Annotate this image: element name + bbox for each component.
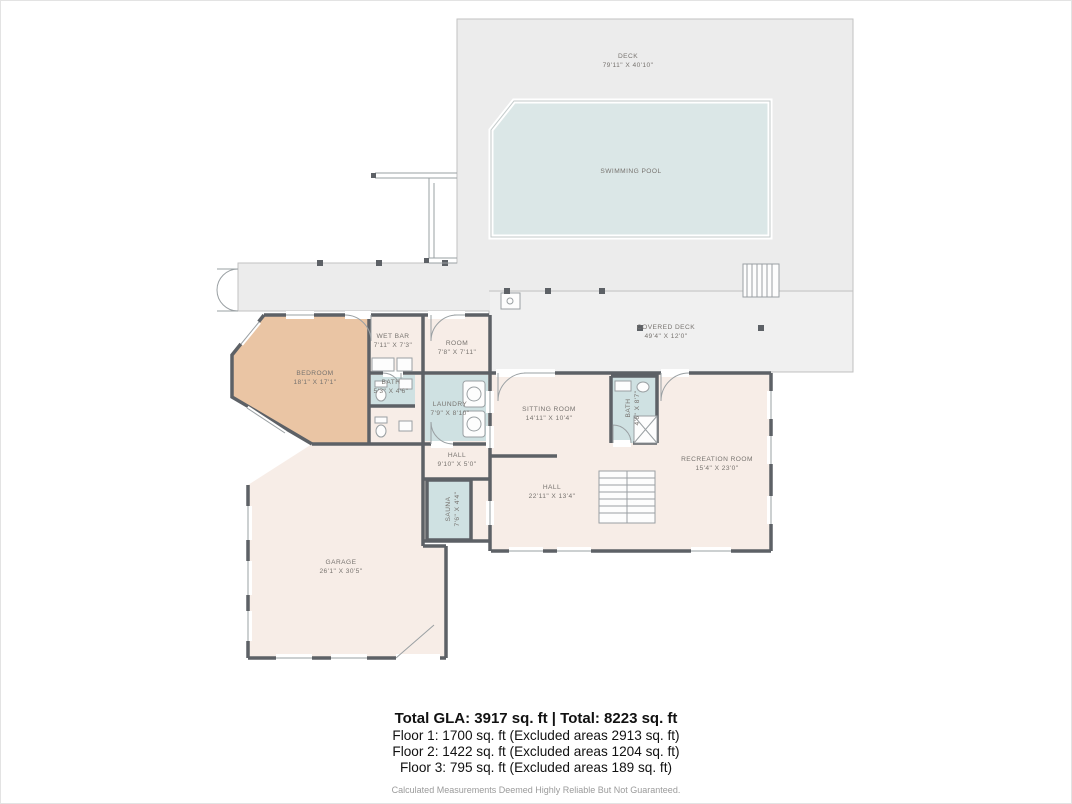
deck-equipment-box — [501, 293, 520, 309]
floor-1-line: Floor 1: 1700 sq. ft (Excluded areas 291… — [1, 728, 1071, 744]
floor-3-line: Floor 3: 795 sq. ft (Excluded areas 189 … — [1, 760, 1071, 776]
room-label-swimming-pool: SWIMMING POOL — [600, 168, 661, 175]
floor-plan-page: DECK79'11" X 40'10"SWIMMING POOLCOVERED … — [0, 0, 1072, 804]
disclaimer-line: Calculated Measurements Deemed Highly Re… — [1, 785, 1071, 795]
covered-deck-area — [490, 292, 852, 371]
interior-stairs — [599, 471, 655, 523]
total-gla-line: Total GLA: 3917 sq. ft | Total: 8223 sq.… — [1, 711, 1071, 728]
floor-2-line: Floor 2: 1422 sq. ft (Excluded areas 120… — [1, 744, 1071, 760]
deck-railing — [371, 173, 457, 263]
measurement-summary: Total GLA: 3917 sq. ft | Total: 8223 sq.… — [1, 711, 1071, 795]
garage-area — [248, 444, 446, 658]
floor-plan: DECK79'11" X 40'10"SWIMMING POOLCOVERED … — [1, 1, 1072, 804]
deck-stairs — [743, 264, 779, 297]
